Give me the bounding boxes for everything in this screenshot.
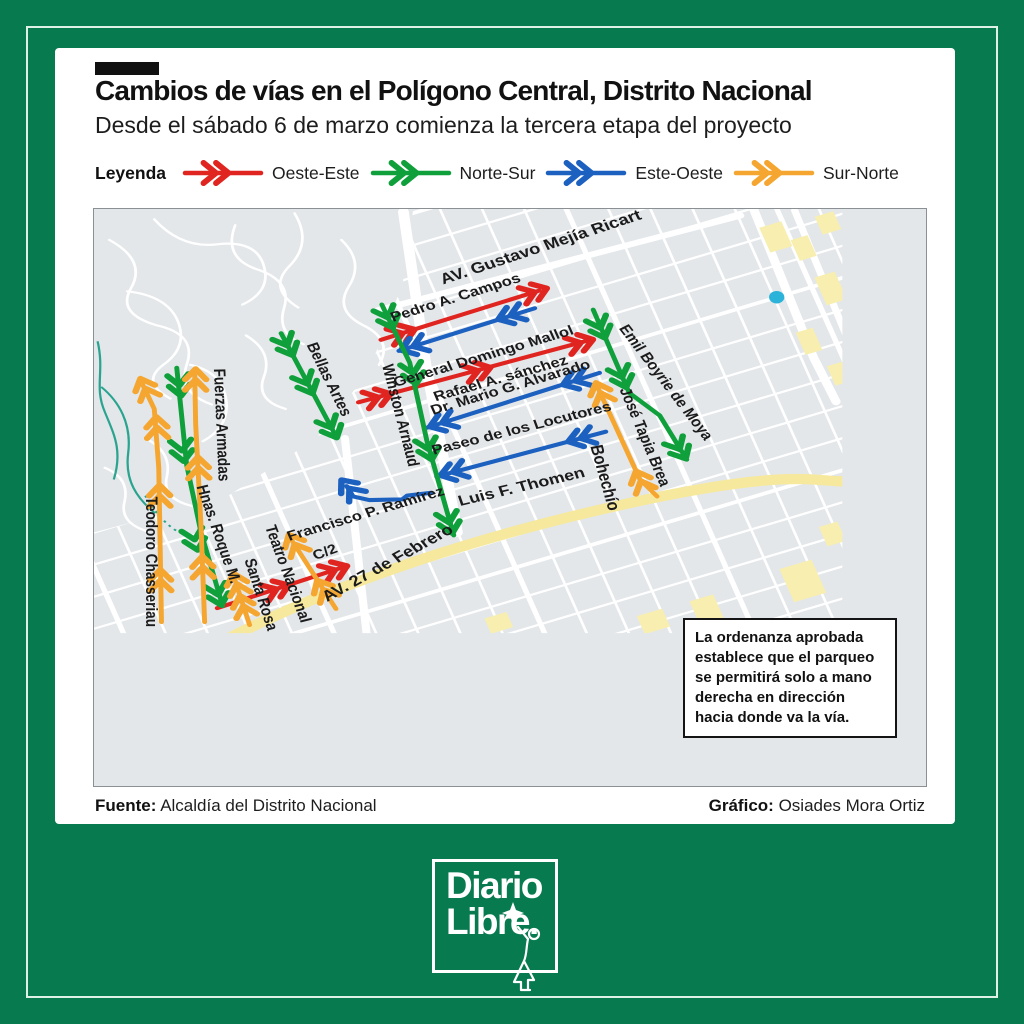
page-title: Cambios de vías en el Polígono Central, … [95,75,925,107]
green-arrow-icon [370,160,452,186]
credit-text: Osiades Mora Ortiz [779,796,925,815]
graphic-credit: Gráfico: Osiades Mora Ortiz [709,796,925,816]
mascot-figure [514,927,539,990]
credit-label: Gráfico: [709,796,774,815]
kicker-bar [95,62,159,75]
legend-label: Este-Oeste [635,163,723,184]
ordinance-note: La ordenanza aprobada establece que el p… [683,618,897,738]
legend-label: Sur-Norte [823,163,899,184]
legend-item-sur-norte: Sur-Norte [733,160,899,186]
infographic-card: Cambios de vías en el Polígono Central, … [55,48,955,824]
legend-label: Norte-Sur [460,163,536,184]
legend-item-oeste-este: Oeste-Este [182,160,360,186]
footer: Fuente: Alcaldía del Distrito Nacional G… [95,796,925,816]
red-arrow-icon [182,160,264,186]
blue-arrow-icon [545,160,627,186]
legend-item-este-oeste: Este-Oeste [545,160,723,186]
legend-label: Oeste-Este [272,163,360,184]
infographic-page: { "header": { "title": "Cambios de vías … [0,0,1024,1024]
legend-title: Leyenda [95,163,166,184]
source-text: Alcaldía del Distrito Nacional [160,796,376,815]
legend-item-norte-sur: Norte-Sur [370,160,536,186]
orange-arrow-icon [733,160,815,186]
legend: Leyenda Oeste-EsteNorte-SurEste-OesteSur… [95,158,899,188]
source-label: Fuente: [95,796,156,815]
logo-mascot-icon [497,898,559,993]
landmark-dot [769,291,784,303]
mascot-star [502,902,524,924]
source-credit: Fuente: Alcaldía del Distrito Nacional [95,796,377,816]
page-subtitle: Desde el sábado 6 de marzo comienza la t… [95,112,925,139]
street-label-teodoro-chasseriau: Teodoro Chasseriau [142,497,161,627]
